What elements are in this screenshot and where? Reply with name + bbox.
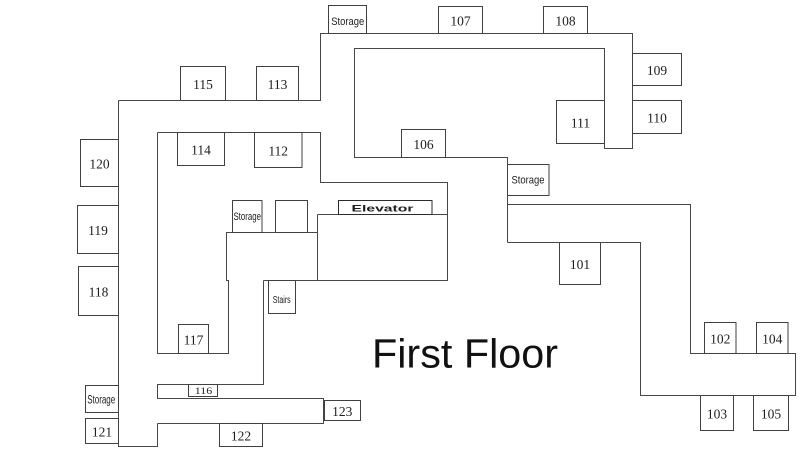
svg-text:Stairs: Stairs: [273, 295, 291, 306]
svg-text:118: 118: [89, 284, 109, 299]
svg-text:116: 116: [195, 386, 213, 396]
svg-text:101: 101: [570, 257, 590, 272]
svg-text:105: 105: [761, 406, 782, 421]
svg-text:122: 122: [231, 428, 251, 443]
svg-text:Storage: Storage: [87, 395, 115, 407]
svg-text:112: 112: [268, 143, 288, 158]
svg-text:102: 102: [710, 331, 730, 346]
svg-text:107: 107: [450, 13, 471, 28]
svg-text:109: 109: [647, 63, 668, 78]
svg-text:106: 106: [413, 137, 434, 152]
svg-text:104: 104: [762, 331, 783, 346]
svg-text:First Floor: First Floor: [372, 331, 558, 377]
svg-text:117: 117: [184, 332, 204, 347]
svg-text:123: 123: [332, 404, 353, 419]
svg-text:120: 120: [89, 156, 110, 171]
svg-text:115: 115: [193, 77, 213, 92]
svg-text:103: 103: [707, 406, 728, 421]
svg-text:113: 113: [268, 77, 288, 92]
svg-text:Storage: Storage: [512, 175, 545, 187]
svg-text:119: 119: [88, 223, 108, 238]
svg-text:Storage: Storage: [233, 211, 261, 223]
svg-text:Elevator: Elevator: [352, 203, 415, 213]
svg-text:108: 108: [555, 13, 576, 28]
svg-text:111: 111: [571, 115, 590, 130]
svg-text:114: 114: [191, 142, 211, 157]
svg-text:Storage: Storage: [331, 16, 364, 28]
svg-text:121: 121: [92, 424, 112, 439]
svg-text:110: 110: [647, 110, 667, 125]
